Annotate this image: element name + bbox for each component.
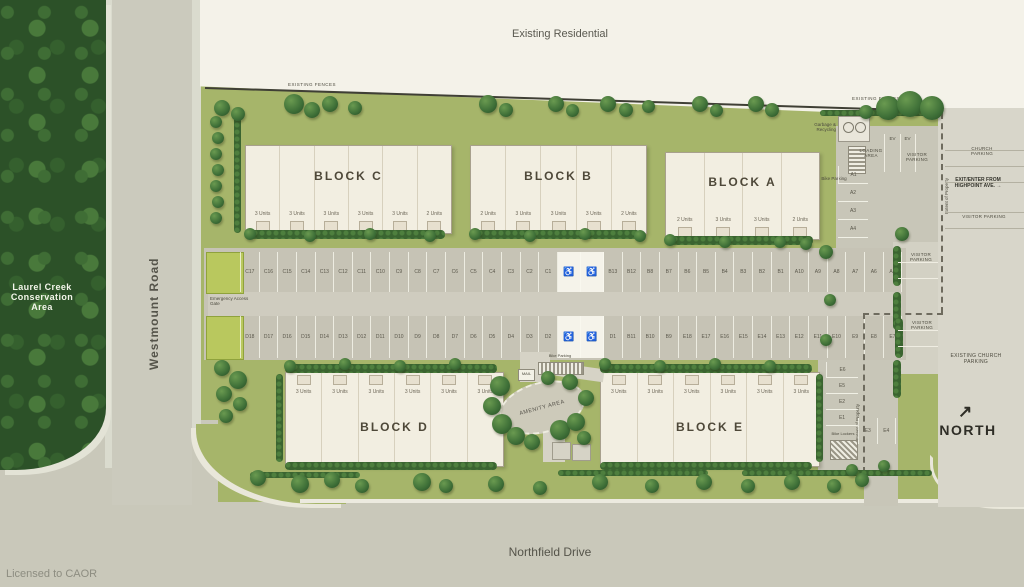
unit-count-label: 3 Units: [577, 211, 611, 217]
tree: [855, 473, 869, 487]
parking-stall: D15: [297, 316, 316, 358]
tree: [654, 360, 666, 372]
parking-stall: C15: [278, 252, 297, 292]
tree: [645, 479, 659, 493]
parking-stall: A6: [865, 252, 884, 292]
tree: [619, 103, 633, 117]
unit-bay: 3 Units: [349, 146, 383, 233]
parking-stall: E8: [865, 316, 884, 358]
ev-label-1: EV: [885, 136, 900, 141]
parking-stall: D7: [446, 316, 465, 358]
tree: [229, 371, 247, 389]
parking-stall: ♿: [581, 316, 604, 358]
parking-stall: E12: [790, 316, 809, 358]
tree: [479, 95, 497, 113]
existing-church-parking-label: EXISTING CHURCH PARKING: [946, 354, 1006, 366]
tree: [291, 475, 309, 493]
visitor-parking-label-4: VISITOR PARKING: [903, 320, 941, 330]
visitor-parking-label-3: VISITOR PARKING: [902, 252, 940, 262]
bike-lockers: [830, 440, 858, 460]
parking-stall: A3: [838, 202, 868, 220]
drive-aisle: [208, 292, 902, 316]
parking-stall: A2: [838, 184, 868, 202]
hedge-row: [895, 318, 903, 358]
parking-stall: C7: [427, 252, 446, 292]
unit-bay: 3 Units: [743, 153, 782, 239]
parking-stall: E18: [679, 316, 698, 358]
parking-stall: B8: [641, 252, 660, 292]
parking-stall: A8: [828, 252, 847, 292]
unit-count-label: 3 Units: [280, 211, 313, 217]
unit-count-label: 3 Units: [431, 389, 466, 395]
parking-stall: D17: [260, 316, 279, 358]
visitor-parking-label-2: VISITOR PARKING: [962, 214, 1006, 219]
unit-patio: [648, 375, 662, 385]
tree: [895, 227, 909, 241]
unit-count-label: 3 Units: [541, 211, 575, 217]
unit-bay: 3 Units: [705, 153, 744, 239]
garbage-bin-icon: [843, 122, 854, 133]
parking-stall: B9: [660, 316, 679, 358]
tree: [774, 236, 786, 248]
tree: [764, 360, 776, 372]
parking-stall: E17: [697, 316, 716, 358]
e-stall-pair: E3E4: [858, 418, 896, 444]
parking-stall: D11: [371, 316, 390, 358]
tree: [483, 397, 501, 415]
unit-count-label: 3 Units: [359, 389, 394, 395]
parking-stall: C5: [465, 252, 484, 292]
tree: [765, 103, 779, 117]
a-stall-column: A1A2A3A4: [838, 166, 868, 238]
parking-stall: D1: [604, 316, 623, 358]
tree: [413, 473, 431, 491]
unit-bay: 3 Units: [383, 146, 417, 233]
tree: [339, 358, 351, 370]
visitor-stall-line: [898, 346, 938, 347]
unit-count-label: 3 Units: [705, 217, 743, 223]
tree: [548, 96, 564, 112]
existing-fences-label-left: EXISTING FENCES: [288, 82, 336, 87]
tree: [348, 101, 362, 115]
tree: [696, 474, 712, 490]
tree: [322, 96, 338, 112]
parking-stall: C11: [353, 252, 372, 292]
tree: [524, 434, 540, 450]
tree: [394, 360, 406, 372]
e-stall-column: E6E5E2E1: [826, 362, 858, 426]
unit-count-label: 3 Units: [286, 389, 321, 395]
tree: [592, 474, 608, 490]
hedge-row: [285, 462, 497, 470]
unit-patio: [369, 375, 383, 385]
tree: [284, 94, 304, 114]
hedge-row: [600, 462, 812, 470]
sidewalk-west-right: [192, 0, 201, 442]
parking-stall: D12: [353, 316, 372, 358]
unit-count-label: 3 Units: [674, 389, 710, 395]
block-a-label: BLOCK A: [666, 175, 819, 189]
parking-stall: D9: [409, 316, 428, 358]
tree: [324, 472, 340, 488]
ev-label-2: EV: [900, 136, 915, 141]
northfield-drive-label: Northfield Drive: [460, 546, 640, 560]
hedge-row: [742, 470, 932, 476]
parking-stall: B13: [604, 252, 623, 292]
north-label: NORTH: [932, 422, 1004, 438]
parking-stall: D13: [334, 316, 353, 358]
hedge-row: [893, 360, 901, 398]
hedge-row: [600, 364, 812, 373]
parking-stall: C10: [371, 252, 390, 292]
unit-patio: [442, 375, 456, 385]
westmount-road-label: Westmount Road: [148, 240, 162, 370]
tree: [490, 376, 510, 396]
unit-count-label: 3 Units: [638, 389, 674, 395]
church-stall-line: [945, 212, 1024, 213]
tree: [709, 358, 721, 370]
accessible-parking-icon: ♿: [558, 332, 580, 343]
church-stall-line: [945, 182, 1024, 183]
tree: [214, 360, 230, 376]
unit-bay: 2 Units: [471, 146, 506, 233]
parking-stall: B11: [623, 316, 642, 358]
parking-stall: B2: [753, 252, 772, 292]
tree: [250, 470, 266, 486]
parking-stall: B1: [772, 252, 791, 292]
parking-stall: B7: [660, 252, 679, 292]
tree: [233, 397, 247, 411]
parking-stall: E1: [826, 410, 858, 426]
tree: [800, 238, 812, 250]
unit-count-label: 3 Units: [322, 389, 357, 395]
unit-bay: 3 Units: [541, 146, 576, 233]
parking-stall: A7: [846, 252, 865, 292]
parking-stall: E4: [878, 418, 897, 444]
existing-residential-label: Existing Residential: [460, 28, 660, 41]
accessible-parking-icon: ♿: [558, 267, 580, 278]
hedge-row: [234, 108, 241, 233]
parking-stall: D5: [483, 316, 502, 358]
tree: [820, 334, 832, 346]
block-b-label: BLOCK B: [471, 169, 646, 183]
parking-stall: A4: [838, 220, 868, 238]
accessible-parking-icon: ♿: [581, 332, 603, 343]
parking-stall: B3: [734, 252, 753, 292]
tree: [533, 481, 547, 495]
unit-bay: 2 Units: [666, 153, 705, 239]
visitor-stall-line: [898, 262, 938, 263]
unit-bay: 2 Units: [418, 146, 451, 233]
parking-stall: C13: [316, 252, 335, 292]
parking-stall: C2: [521, 252, 540, 292]
tree: [214, 100, 230, 116]
unit-bay: 2 Units: [612, 146, 646, 233]
unit-count-label: 3 Units: [747, 389, 783, 395]
tree: [507, 427, 525, 445]
parking-stall: D14: [316, 316, 335, 358]
tree: [304, 230, 316, 242]
tree: [524, 230, 536, 242]
tree: [439, 479, 453, 493]
parking-stall: B6: [679, 252, 698, 292]
parking-stall: E15: [734, 316, 753, 358]
mail-label: MAIL: [519, 372, 534, 377]
parking-stall: D4: [502, 316, 521, 358]
amenity-area-label: AMENITY AREA: [519, 399, 566, 417]
church-stall-line: [945, 150, 1024, 151]
sidewalk-west-left: [105, 0, 112, 468]
unit-count-label: 2 Units: [666, 217, 704, 223]
unit-count-label: 3 Units: [395, 389, 430, 395]
unit-patio: [297, 375, 311, 385]
unit-patio: [721, 375, 735, 385]
visitor-stall-line: [898, 330, 938, 331]
tree: [710, 104, 723, 117]
unit-count-label: 3 Units: [784, 389, 820, 395]
parking-stall: C3: [502, 252, 521, 292]
parking-stall: E5: [826, 378, 858, 394]
property-line-horizontal: [863, 313, 943, 315]
tree: [424, 230, 436, 242]
tree: [210, 148, 222, 160]
unit-patio: [612, 375, 626, 385]
block-e: 3 Units3 Units3 Units3 Units3 Units3 Uni…: [600, 372, 820, 467]
parking-stall: D8: [427, 316, 446, 358]
unit-count-label: 3 Units: [506, 211, 540, 217]
garbage-recycling-pad: [838, 116, 870, 142]
tree: [231, 107, 245, 121]
parking-row-1: C17C16C15C14C13C12C11C10C9C8C7C6C5C4C3C2…: [240, 252, 902, 292]
bike-lockers-label: Bike Lockers: [822, 432, 864, 437]
tree: [578, 390, 594, 406]
parking-stall: E13: [772, 316, 791, 358]
tree: [210, 116, 222, 128]
amenity-pad-1: [552, 442, 571, 460]
tree: [599, 358, 611, 370]
parking-stall: D6: [465, 316, 484, 358]
parking-stall: B10: [641, 316, 660, 358]
hedge-row: [470, 230, 640, 239]
church-stall-line: [945, 228, 1024, 229]
parking-stall: C17: [240, 252, 260, 292]
hedge-row: [245, 230, 445, 239]
parking-stall: E14: [753, 316, 772, 358]
unit-count-label: 3 Units: [601, 389, 637, 395]
tree: [748, 96, 764, 112]
parking-stall: B5: [697, 252, 716, 292]
hedge-row: [816, 374, 823, 462]
church-stall-line: [945, 166, 1024, 167]
hedge-row: [285, 364, 497, 373]
tree: [600, 96, 616, 112]
block-d: 3 Units3 Units3 Units3 Units3 Units3 Uni…: [285, 372, 504, 467]
tree: [541, 371, 555, 385]
tree: [499, 103, 513, 117]
block-b: 2 Units3 Units3 Units3 Units2 Units BLOC…: [470, 145, 647, 234]
tree: [469, 228, 481, 240]
parking-stall: ♿: [558, 252, 581, 292]
parking-stall: C14: [297, 252, 316, 292]
accessible-parking-icon: ♿: [581, 267, 603, 278]
tree: [488, 476, 504, 492]
parking-stall: ♿: [581, 252, 604, 292]
tree: [859, 105, 873, 119]
block-a: 2 Units3 Units3 Units2 Units BLOCK A: [665, 152, 820, 240]
unit-count-label: 3 Units: [349, 211, 382, 217]
unit-count-label: 3 Units: [711, 389, 747, 395]
tree: [244, 228, 256, 240]
tree: [824, 294, 836, 306]
parking-stall: E6: [826, 362, 858, 378]
parking-stall: C9: [390, 252, 409, 292]
unit-count-label: 3 Units: [246, 211, 279, 217]
block-d-label: BLOCK D: [286, 420, 503, 434]
parking-stall: C12: [334, 252, 353, 292]
tree: [216, 386, 232, 402]
sidewalk-south: [300, 499, 1024, 503]
unit-bay: 3 Units: [577, 146, 612, 233]
emergency-gate-north: [206, 252, 244, 294]
parking-stall: D18: [240, 316, 260, 358]
garbage-recycling-label: Garbage & Recycling: [794, 122, 836, 132]
parking-stall: C8: [409, 252, 428, 292]
property-line-vertical-north: [941, 113, 943, 313]
unit-count-label: 3 Units: [743, 217, 781, 223]
conservation-forest: Laurel Creek Conservation Area: [0, 0, 106, 470]
parking-stall: E3: [858, 418, 878, 444]
unit-bay: 2 Units: [782, 153, 820, 239]
tree: [304, 102, 320, 118]
block-e-label: BLOCK E: [601, 420, 819, 434]
unit-count-label: 2 Units: [782, 217, 820, 223]
tree: [719, 236, 731, 248]
tree: [692, 96, 708, 112]
church-parking-lot: [938, 108, 1024, 507]
tree: [741, 479, 755, 493]
recycling-bin-icon: [855, 122, 866, 133]
unit-count-label: 2 Units: [471, 211, 505, 217]
parking-stall: C6: [446, 252, 465, 292]
tree: [210, 212, 222, 224]
credit-label: Licensed to CAOR: [6, 568, 97, 581]
parking-stall: A1: [838, 166, 868, 184]
tree: [284, 360, 296, 372]
tree: [634, 230, 646, 242]
tree: [579, 228, 591, 240]
unit-patio: [758, 375, 772, 385]
unit-count-label: 3 Units: [315, 211, 348, 217]
tree: [364, 228, 376, 240]
tree: [210, 180, 222, 192]
emergency-access-gate-label: Emergency Access Gate: [210, 296, 256, 306]
unit-bay: 3 Units: [315, 146, 349, 233]
unit-bay: 3 Units: [280, 146, 314, 233]
amenity-pad-2: [572, 444, 591, 461]
tree: [212, 164, 224, 176]
north-arrow-icon: ↗: [958, 402, 972, 422]
parking-stall: C16: [260, 252, 279, 292]
parking-stall: B12: [623, 252, 642, 292]
tree: [449, 358, 461, 370]
tree: [784, 474, 800, 490]
parking-stall: D10: [390, 316, 409, 358]
tree: [664, 234, 676, 246]
hedge-row: [276, 374, 283, 462]
tree: [567, 413, 585, 431]
unit-count-label: 3 Units: [383, 211, 416, 217]
unit-patio: [406, 375, 420, 385]
tree: [827, 479, 841, 493]
unit-bay: 3 Units: [246, 146, 280, 233]
unit-count-label: 2 Units: [418, 211, 451, 217]
mail-kiosk: MAIL: [518, 369, 535, 381]
visitor-parking-label-1: VISITOR PARKING: [898, 152, 936, 162]
hedge-row: [665, 236, 813, 245]
site-plan: Laurel Creek Conservation Area EXISTING …: [0, 0, 1024, 587]
tree: [819, 245, 833, 259]
parking-stall: D16: [278, 316, 297, 358]
tree: [212, 196, 224, 208]
parking-stall: B4: [716, 252, 735, 292]
parking-row-2: D18D17D16D15D14D13D12D11D10D9D8D7D6D5D4D…: [240, 316, 902, 358]
unit-count-label: 2 Units: [612, 211, 646, 217]
bike-parking-amenity-label: Bike Parking: [536, 354, 584, 359]
parking-stall: ♿: [558, 316, 581, 358]
tree: [846, 464, 858, 476]
tree: [566, 104, 579, 117]
exit-enter-label: EXIT/ENTER FROM HIGHPOINT AVE. →: [946, 178, 1010, 190]
tree: [212, 132, 224, 144]
tree: [355, 479, 369, 493]
tree: [878, 460, 890, 472]
parking-stall: A10: [790, 252, 809, 292]
church-parking-label: CHURCH PARKING: [960, 146, 1004, 156]
tree: [642, 100, 655, 113]
visitor-stall-line: [898, 278, 938, 279]
unit-patio: [794, 375, 808, 385]
parking-stall: E16: [716, 316, 735, 358]
conservation-area-label: Laurel Creek Conservation Area: [6, 282, 78, 312]
tree: [562, 374, 578, 390]
tree: [876, 96, 900, 120]
tree: [897, 91, 923, 117]
parking-stall: C4: [483, 252, 502, 292]
unit-patio: [333, 375, 347, 385]
hedge-row: [558, 470, 708, 476]
loading-area-label: LOADING AREA: [856, 148, 886, 158]
tree: [577, 431, 591, 445]
parking-stall: C1: [539, 252, 558, 292]
tree: [920, 96, 944, 120]
block-c: 3 Units3 Units3 Units3 Units3 Units2 Uni…: [245, 145, 452, 234]
hedge-row: [893, 246, 901, 286]
emergency-gate-south: [206, 316, 244, 360]
parking-stall: E2: [826, 394, 858, 410]
tree: [219, 409, 233, 423]
property-line-vertical-south: [863, 313, 865, 473]
unit-patio: [685, 375, 699, 385]
block-c-label: BLOCK C: [246, 169, 451, 183]
unit-bay: 3 Units: [506, 146, 541, 233]
